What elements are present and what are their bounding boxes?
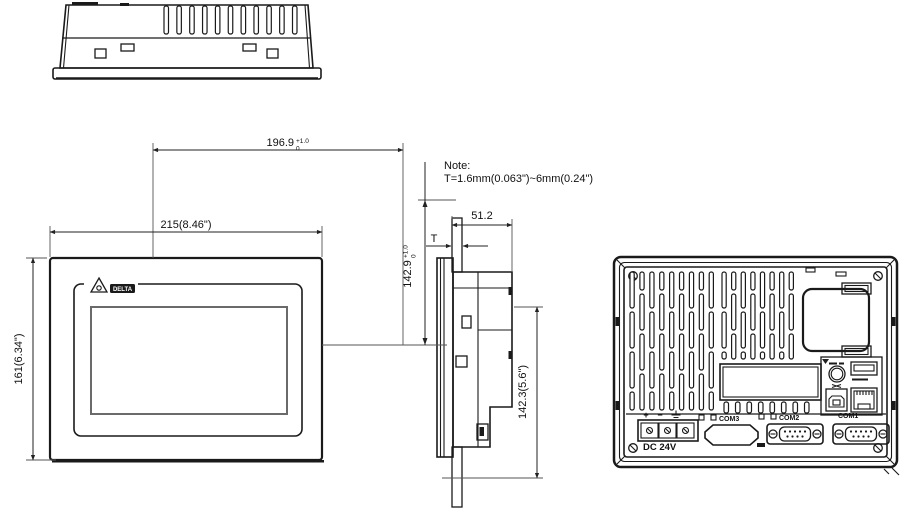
front-width-value: 215(8.46"): [161, 219, 212, 231]
top-mount-clip: [243, 44, 256, 51]
top-view-vent-slots: [164, 6, 297, 34]
note-text: T=1.6mm(0.063")~6mm(0.24"): [444, 173, 593, 185]
hmi-dimension-drawing: DELTA: [0, 0, 900, 514]
com1-label: COM1: [838, 413, 858, 420]
top-mount-clip: [95, 49, 106, 58]
dimension-side-depth: 51.2: [452, 210, 512, 271]
front-height-value: 161(6.34"): [13, 334, 25, 385]
terminal-plus-label: +: [643, 410, 648, 420]
side-view: [437, 218, 512, 507]
technical-drawing-page: DELTA: [0, 0, 900, 514]
com2-label: COM2: [779, 415, 799, 422]
com3-cutout: [705, 425, 758, 445]
cutout-width-tol-upper: +1.0: [296, 138, 309, 145]
note-block: Note: T=1.6mm(0.063")~6mm(0.24"): [444, 160, 593, 185]
expansion-cover: [803, 289, 869, 351]
top-connector-slot: [72, 2, 98, 6]
front-view: DELTA: [50, 258, 324, 461]
terminal-minus-label: −: [657, 410, 662, 420]
cover-latch: [842, 283, 871, 357]
rear-view: + − DC 24V COM3 COM2: [614, 257, 899, 475]
side-mount-clip: [462, 316, 471, 328]
side-depth-value: 51.2: [471, 210, 492, 222]
cutout-width-value: 196.9: [266, 137, 294, 149]
top-mount-clip: [267, 49, 278, 58]
key-icon: [832, 385, 841, 388]
note-title: Note:: [444, 160, 470, 172]
top-view: [53, 2, 321, 79]
dimension-cutout-height: 142.9 +1.0 0: [322, 162, 456, 345]
cutout-height-tol-upper: +1.0: [403, 245, 410, 258]
brand-label: DELTA: [113, 287, 133, 293]
cutout-width-tol-lower: 0: [296, 146, 300, 153]
side-bezel: [437, 258, 453, 457]
rear-vent-slots-bottom: [724, 402, 809, 413]
com3-label: COM3: [719, 416, 739, 423]
com3-port: COM3: [699, 415, 758, 445]
side-body: [453, 272, 512, 447]
ground-icon: [672, 411, 681, 421]
dimension-cutout-width: 196.9 +1.0 0: [153, 137, 403, 345]
power-terminal: + − DC 24V: [638, 410, 698, 453]
io-cluster: [821, 357, 882, 415]
side-mount-clip: [456, 356, 467, 367]
com1-port: COM1: [833, 413, 889, 444]
touch-screen: [91, 307, 287, 414]
rear-vent-slots-right: [722, 272, 793, 359]
rear-vent-slots-left: [630, 272, 713, 410]
usb-a-port: [851, 362, 877, 375]
cutout-height-tol-lower: 0: [411, 254, 418, 258]
cutout-height-value: 142.9: [402, 260, 414, 288]
top-mount-clip: [121, 44, 134, 51]
panel-thickness-label: T: [431, 233, 438, 245]
dimension-panel-thickness: T: [426, 233, 488, 246]
label-cover: [720, 364, 821, 400]
com2-port: COM2: [759, 414, 823, 444]
ethernet-port: [851, 388, 877, 412]
body-height-value: 142.3(5.6"): [517, 365, 529, 419]
dimension-front-width: 215(8.46"): [50, 219, 322, 257]
dimension-body-height: 142.3(5.6"): [442, 307, 543, 478]
power-label: DC 24V: [643, 442, 677, 453]
